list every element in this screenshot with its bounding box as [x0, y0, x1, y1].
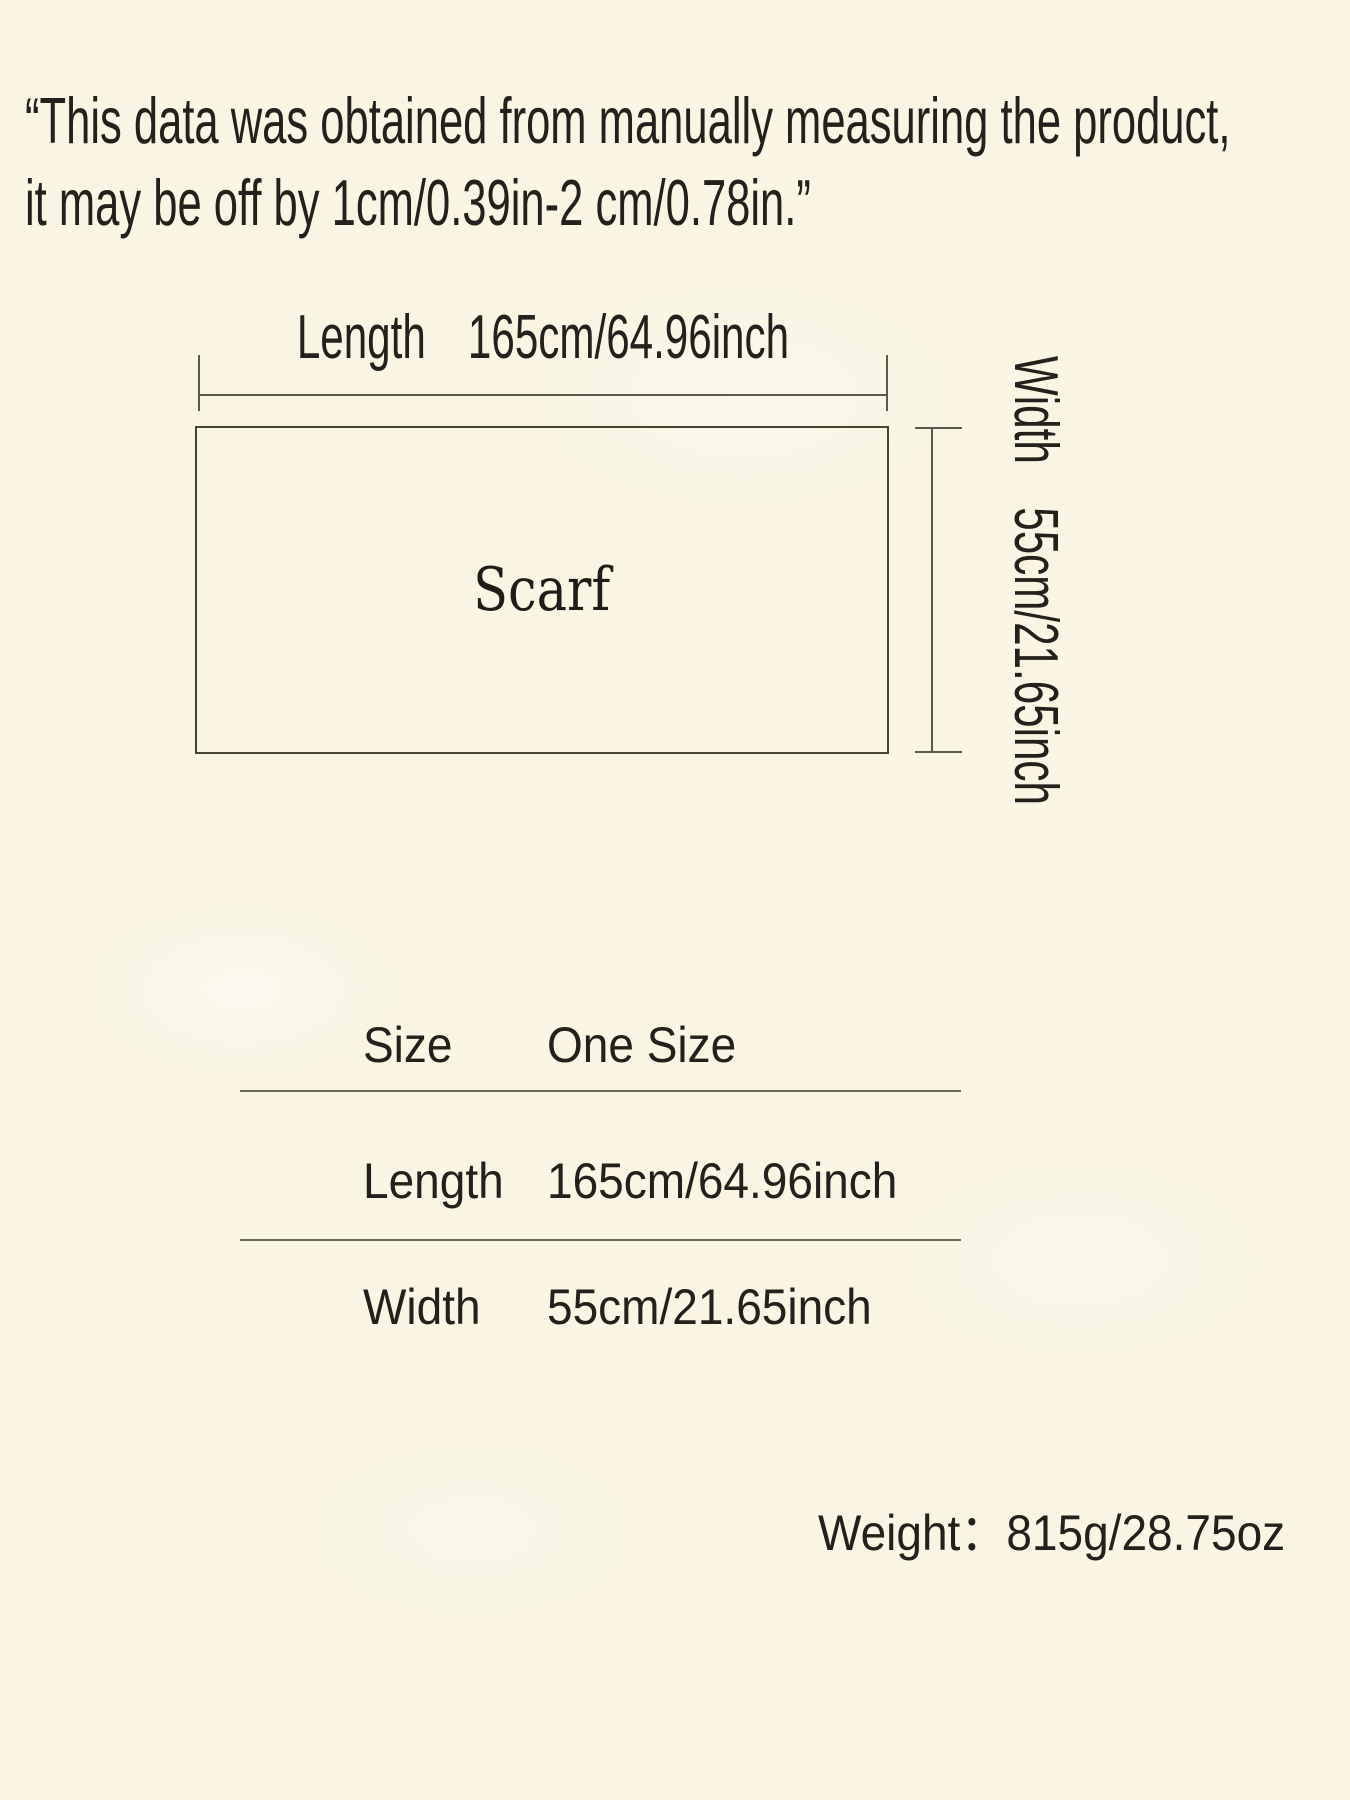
disclaimer-line-2: it may be off by 1cm/0.39in-2 cm/0.78in.… — [25, 170, 811, 235]
width-value-text: 55cm/21.65inch — [1000, 507, 1071, 805]
row-label: Length — [363, 1156, 504, 1206]
length-dimension-tick-left — [198, 355, 200, 411]
table-divider-1 — [240, 1090, 961, 1092]
table-divider-2 — [240, 1239, 961, 1241]
row-label: Size — [363, 1020, 452, 1070]
disclaimer-line-1: “This data was obtained from manually me… — [25, 88, 1230, 153]
scarf-label: Scarf — [473, 560, 610, 620]
length-label-text: Length — [296, 307, 425, 369]
size-chart-page: “This data was obtained from manually me… — [0, 0, 1350, 1800]
weight-value: 815g/28.75oz — [1006, 1508, 1285, 1558]
length-dimension-tick-right — [886, 355, 888, 411]
length-dimension-line — [199, 394, 888, 396]
length-value-text: 165cm/64.96inch — [468, 307, 789, 369]
width-dimension-label: Width 55cm/21.65inch — [1000, 356, 1071, 805]
width-label-text: Width — [1000, 356, 1071, 464]
width-dimension-cap-bottom — [915, 751, 962, 753]
row-label: Width — [363, 1282, 481, 1332]
width-dimension-cap-top — [915, 427, 962, 429]
row-value: 165cm/64.96inch — [547, 1156, 897, 1206]
scarf-rectangle: Scarf — [195, 426, 889, 754]
row-value: 55cm/21.65inch — [547, 1282, 872, 1332]
weight-label: Weight： — [818, 1508, 1006, 1558]
length-dimension-label: Length 165cm/64.96inch — [196, 307, 889, 369]
row-value: One Size — [547, 1020, 736, 1070]
weight-line: Weight： 815g/28.75oz — [818, 1508, 1285, 1558]
width-dimension-line — [931, 427, 933, 753]
